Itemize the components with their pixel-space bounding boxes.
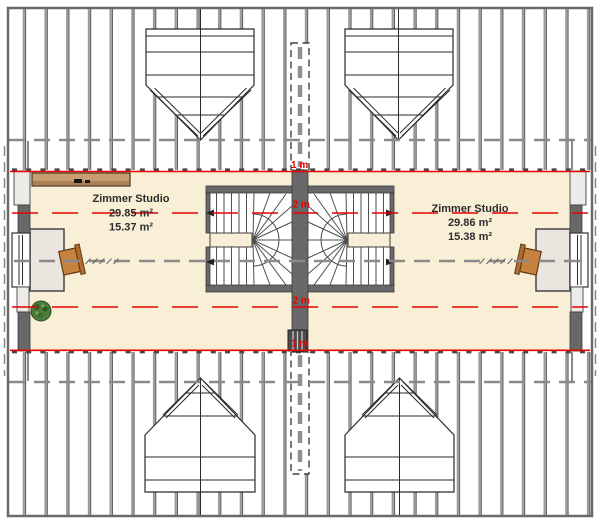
height-marker-1m-bottom: 1 m <box>291 339 308 350</box>
height-marker-2m-top: 2 m <box>293 200 310 211</box>
height-marker-2m-bottom: 2 m <box>293 296 310 307</box>
sideboard <box>32 173 130 186</box>
room-area-reduced: 15.38 m² <box>448 231 492 243</box>
room-area-total: 29.86 m² <box>448 217 492 229</box>
floor-plan-svg: Zimmer Studio 29.85 m² 15.37 m² Zimmer S… <box>0 0 600 524</box>
staircase-right <box>308 186 394 292</box>
chimney-shaft-top <box>291 43 309 170</box>
floor-plan: Zimmer Studio 29.85 m² 15.37 m² Zimmer S… <box>0 0 600 524</box>
staircase-left <box>206 186 292 292</box>
room-name: Zimmer Studio <box>431 203 508 215</box>
chimney-shaft-bottom <box>291 352 309 474</box>
room-area-total: 29.85 m² <box>109 208 153 220</box>
potted-plant <box>31 301 51 321</box>
height-marker-1m-top: 1 m <box>291 160 308 171</box>
room-name: Zimmer Studio <box>92 193 169 205</box>
room-area-reduced: 15.37 m² <box>109 222 153 234</box>
